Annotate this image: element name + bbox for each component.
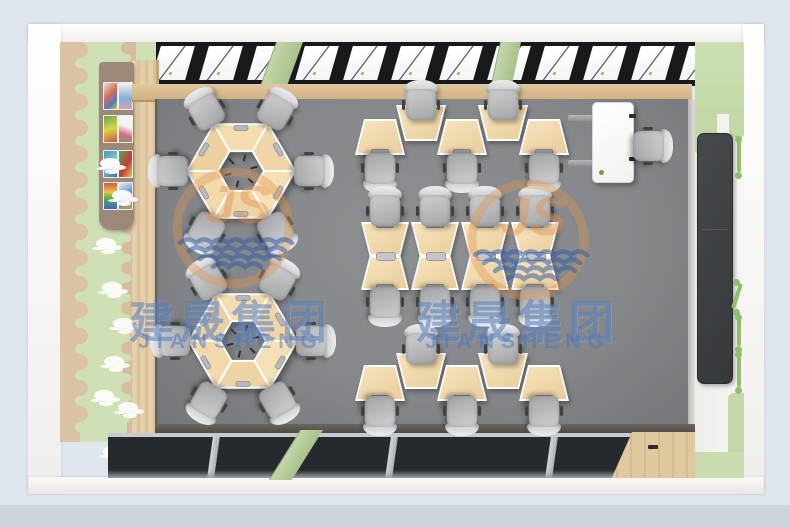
chair — [150, 323, 192, 359]
window-pane — [583, 46, 627, 80]
window-pane — [343, 46, 387, 80]
chair-arm — [451, 206, 454, 216]
frame-right — [743, 24, 764, 493]
cloud-decal — [113, 318, 133, 329]
chair-arm — [366, 206, 369, 216]
table-leg-mark — [228, 158, 234, 164]
chair-seat — [157, 156, 188, 186]
chair-arm — [516, 297, 519, 307]
teacher-desk-green-dot — [599, 170, 604, 175]
chair-seat — [420, 195, 450, 226]
child-artwork — [118, 82, 133, 110]
chair — [485, 324, 521, 366]
window-pane — [295, 46, 339, 80]
window-pane — [391, 46, 435, 80]
hinge-dot — [552, 72, 556, 75]
chair-seat — [406, 333, 436, 364]
sill-wedge — [108, 470, 695, 478]
chair-arm — [361, 406, 364, 416]
window-pane — [199, 46, 243, 80]
chair — [467, 285, 503, 327]
chair-arm — [402, 100, 405, 110]
desk-tray — [234, 212, 248, 217]
chair — [526, 394, 562, 436]
chair-arm — [401, 297, 404, 307]
green-connector — [737, 355, 741, 387]
chair — [403, 80, 439, 122]
chair-seat — [529, 396, 559, 427]
chair-arm — [525, 406, 528, 416]
cloud-decal — [96, 238, 116, 249]
green-dot — [735, 314, 742, 321]
cloud-decal — [100, 158, 120, 169]
chair-arm — [519, 344, 522, 354]
desk-connector — [476, 252, 496, 261]
chair-seat — [420, 287, 450, 318]
green-dot — [735, 136, 742, 143]
trapezoid-desk — [519, 119, 569, 155]
right-wall-green-bracket2 — [729, 112, 744, 138]
hinge-dot — [312, 72, 316, 75]
chair-arm — [170, 322, 180, 325]
chair-arm — [560, 406, 563, 416]
child-artwork — [118, 150, 133, 178]
classroom-render: JS建晟集团JIANSHENGJS建晟集团JIANSHENG — [0, 0, 790, 527]
table-leg-mark — [224, 173, 231, 177]
chair-seat — [529, 153, 559, 184]
chair — [444, 394, 480, 436]
chair-arm — [306, 322, 316, 325]
chair-arm — [437, 100, 440, 110]
right-wall-green-base — [695, 452, 744, 478]
teacher-desk-leg — [568, 115, 594, 121]
child-artwork — [103, 115, 118, 143]
window-pane — [535, 46, 579, 80]
table-leg-mark — [236, 180, 240, 187]
chair-arm — [478, 163, 481, 173]
frame-bottom — [28, 477, 764, 494]
chair-arm — [416, 297, 419, 307]
chair-arm — [551, 297, 554, 307]
floor-left-seam — [155, 99, 159, 433]
green-connector — [737, 318, 741, 346]
chair — [631, 128, 673, 164]
chair — [367, 285, 403, 327]
chair-arm — [304, 152, 314, 155]
desk-tray — [236, 296, 250, 301]
chair-arm — [484, 100, 487, 110]
hinge-dot — [216, 72, 220, 75]
chair-arm — [551, 206, 554, 216]
chair-arm — [443, 406, 446, 416]
hinge-dot — [408, 72, 412, 75]
chair-arm — [478, 406, 481, 416]
chair — [485, 80, 521, 122]
chair-seat — [370, 287, 400, 318]
table-leg-mark — [243, 154, 247, 161]
chair-arm — [451, 297, 454, 307]
chair-arm — [643, 162, 653, 165]
chair-arm — [466, 297, 469, 307]
chair-seat — [294, 156, 325, 186]
bottom-window-strip — [108, 433, 695, 478]
chair-arm — [170, 357, 180, 360]
chair-arm — [402, 344, 405, 354]
cloud-decal — [102, 282, 122, 293]
chair-arm — [306, 357, 316, 360]
hinge-dot — [168, 72, 172, 75]
cloud-decal — [118, 402, 138, 413]
frame-left — [28, 24, 61, 493]
chair-arm — [168, 152, 178, 155]
desk-tray — [234, 126, 248, 131]
chair-arm — [366, 297, 369, 307]
chair — [292, 153, 334, 189]
chair-seat — [488, 89, 518, 120]
chair-seat — [406, 89, 436, 120]
blackboard — [697, 133, 733, 384]
table-leg-mark — [230, 328, 236, 334]
chair-seat — [159, 326, 190, 356]
chair-arm — [361, 163, 364, 173]
chair-arm — [560, 163, 563, 173]
green-dot — [735, 387, 742, 394]
hinge-dot — [600, 72, 604, 75]
cloud-decal — [112, 190, 132, 201]
table-leg-mark — [250, 166, 257, 170]
chair-arm — [466, 206, 469, 216]
table-leg-mark — [238, 350, 242, 357]
chair — [367, 186, 403, 228]
table-leg-mark — [226, 343, 233, 347]
chair-arm — [396, 406, 399, 416]
tan-wavy-border — [60, 42, 100, 442]
chair-seat — [633, 131, 664, 161]
chair-seat — [365, 153, 395, 184]
right-wall-green-band — [695, 42, 744, 114]
chair-seat — [447, 153, 477, 184]
desk-tray — [236, 382, 250, 387]
chair-arm — [519, 100, 522, 110]
chair — [517, 186, 553, 228]
table-leg-mark — [252, 336, 259, 340]
green-dot — [735, 351, 742, 358]
chair-seat — [470, 287, 500, 318]
desk-connector — [526, 252, 546, 261]
hinge-dot — [648, 72, 652, 75]
chair — [517, 285, 553, 327]
chair — [467, 186, 503, 228]
table-leg-mark — [249, 347, 255, 353]
chair — [294, 323, 336, 359]
chair-seat — [470, 195, 500, 226]
frame-top-line — [108, 433, 695, 437]
green-dot — [733, 279, 740, 286]
cloud-decal — [94, 390, 114, 401]
green-dot — [735, 172, 742, 179]
chair — [362, 394, 398, 436]
chair-arm — [168, 187, 178, 190]
chair-arm — [516, 206, 519, 216]
chair-arm — [484, 344, 487, 354]
table-leg-mark — [247, 177, 253, 183]
chair-arm — [396, 163, 399, 173]
window-pane — [439, 46, 483, 80]
chair-arm — [643, 127, 653, 130]
chair-arm — [416, 206, 419, 216]
chair-seat — [520, 287, 550, 318]
chair-seat — [447, 396, 477, 427]
chair — [148, 153, 190, 189]
green-connector — [737, 140, 741, 172]
desk-connector — [376, 252, 396, 261]
cloud-decal — [104, 356, 124, 367]
chair-arm — [501, 206, 504, 216]
chair — [417, 285, 453, 327]
chair-seat — [488, 333, 518, 364]
chair-arm — [401, 206, 404, 216]
child-artwork — [118, 115, 133, 143]
table-leg-mark — [245, 324, 249, 331]
chair-arm — [525, 163, 528, 173]
hinge-dot — [360, 72, 364, 75]
chair-seat — [520, 195, 550, 226]
chair-arm — [501, 297, 504, 307]
child-artwork — [103, 82, 118, 110]
window-pane — [631, 46, 675, 80]
chair-arm — [443, 163, 446, 173]
chair-seat — [296, 326, 327, 356]
chair — [403, 324, 439, 366]
chair-arm — [437, 344, 440, 354]
door-handle-mark — [648, 445, 658, 449]
chair-seat — [365, 396, 395, 427]
chair-arm — [304, 187, 314, 190]
teacher-desk-leg — [568, 160, 594, 166]
chair-seat — [370, 195, 400, 226]
desk-frame-mark — [629, 114, 636, 118]
hinge-dot — [456, 72, 460, 75]
desk-connector — [426, 252, 446, 261]
chair — [417, 186, 453, 228]
frame-top — [28, 24, 764, 43]
artwork-panel — [99, 62, 134, 230]
